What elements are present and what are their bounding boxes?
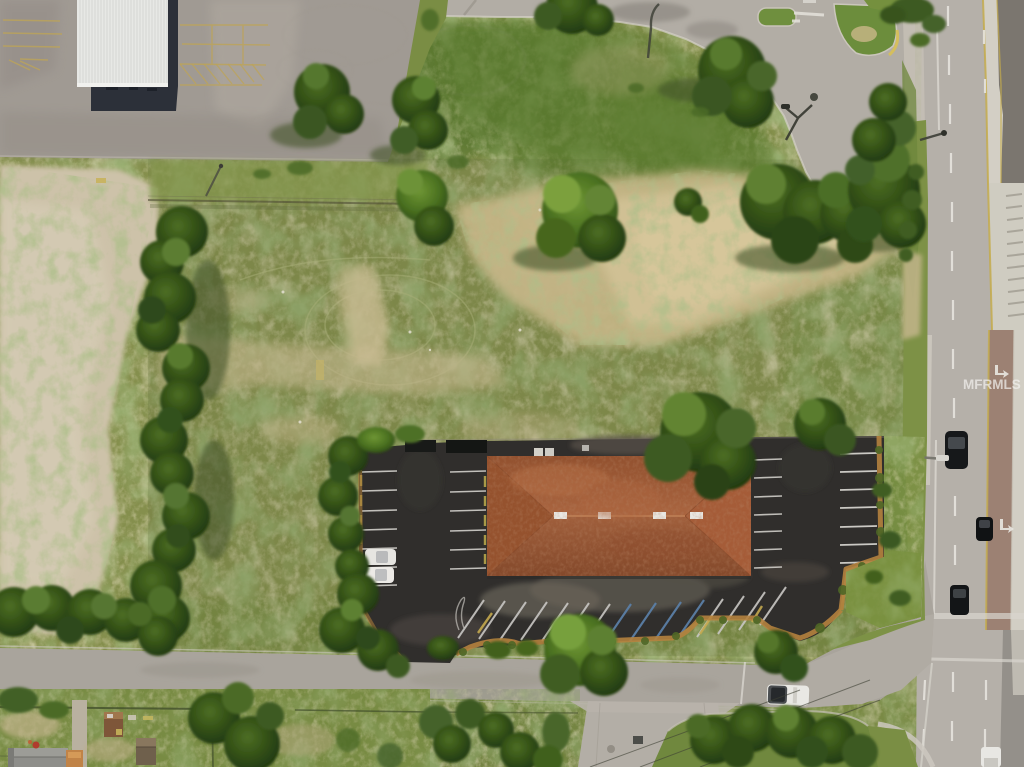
svg-text:MFRMLS: MFRMLS [963,377,1021,392]
